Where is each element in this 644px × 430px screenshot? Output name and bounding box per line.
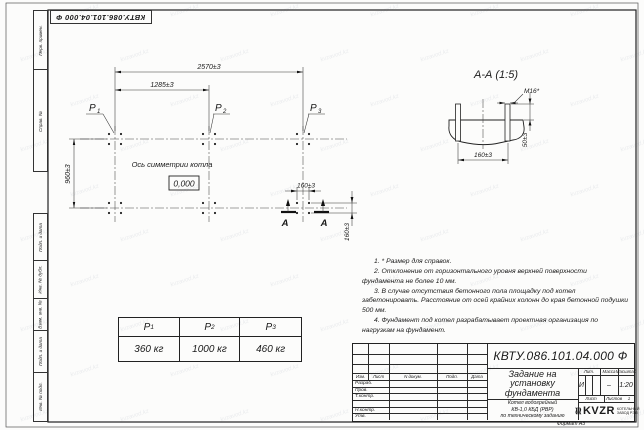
header-text: P [204,322,211,333]
row-tkontr: Т.контр. [355,393,389,400]
note-3: 3. В случае отсутствия бетонного пола пл… [362,287,630,317]
strip-label: Инв. № подл. [38,382,43,411]
logo-cell: KVZR КОТЕЛЬНЫЙ ЗАВОД РЭП [578,402,634,420]
strip-label: Справ. № [38,111,43,132]
load-p1-sub: 1 [97,109,100,115]
strip-label: Перв. примен. [38,25,43,56]
sheets-value: 1 [624,395,634,402]
strip-cell: Инв. № дубл. [34,261,47,299]
anchor-bolt-left [456,104,461,141]
top-designation-text: КВТУ.086.101.04.000 Ф [56,13,145,22]
axis-symmetry-label: Ось симметрии котла [132,160,213,169]
load-p2-sub: 2 [222,109,227,115]
plan-view: 2570±3 1285±3 960±3 P 1 P 2 P 3 Ось симм… [65,64,357,241]
section-letter-right: А [320,218,328,229]
kvzr-logo-text: KVZR [583,405,615,417]
col-list: Лист [368,373,389,380]
kvzr-logo: KVZR КОТЕЛЬНЫЙ ЗАВОД РЭП [573,405,640,417]
load-p3-label: P [310,103,317,114]
note-2: 2. Отклонение от горизонтального уровня … [362,267,630,287]
header-sub: 1 [150,324,154,331]
strip-cell: Перв. примен. [34,11,47,70]
dim-bolt-y-label: 160±3 [344,223,351,241]
load-table: P1 P2 P3 360 кг 1000 кг 460 кг [118,317,302,362]
left-strip-bottom: Подп. и дата Инв. № дубл. Взам. инв. № П… [33,213,48,422]
stamp-product: Котел водогрейный КВ-1,0 КБД (РВР) по те… [488,400,577,420]
strip-label: Подп. и дата [38,337,43,366]
load-p1-label: P [89,103,96,114]
kvzr-logo-caption: КОТЕЛЬНЫЙ ЗАВОД РЭП [617,407,640,415]
format-note: Формат А3 [533,421,609,427]
scale-header: Масштаб [618,368,634,375]
logo-caption-line: ЗАВОД РЭП [617,411,640,415]
load-value-p3: 460 кг [240,337,301,361]
section-dim-height: 50±3 [522,132,529,147]
load-table-header-p1: P1 [119,318,180,337]
technical-notes: 1. * Размер для справок. 2. Отклонение о… [362,257,630,336]
col-data: Дата [467,373,487,380]
anchor-bolt-right [505,104,510,141]
col-izm: Изм. [353,373,368,380]
load-table-header-p2: P2 [180,318,241,337]
dim-overall-label: 2570±3 [196,64,220,71]
section-letter-left: А [281,218,289,229]
section-title: А-А (1:5) [473,69,518,81]
level-mark: 0,000 [173,179,195,189]
section-view: А-А (1:5) М16* 160±3 50±3 [449,69,540,164]
note-1: 1. * Размер для справок. [362,257,630,267]
section-cut-marks: А А [281,199,329,229]
strip-cell: Инв. № подл. [34,373,47,419]
strip-label: Подп. и дата [38,223,43,252]
left-strip-top: Перв. примен. Справ. № [33,10,48,172]
strip-cell: Справ. № [34,70,47,172]
dim-bolt-x-label: 160±3 [297,183,315,190]
section-dim-spacing: 160±3 [474,152,492,159]
header-sub: 3 [272,324,276,331]
load-p2-label: P [215,103,222,114]
strip-cell: Подп. и дата [34,331,47,373]
header-sub: 2 [211,324,215,331]
header-text: P [266,322,273,333]
lit-value: И [578,375,585,395]
note-4: 4. Фундамент под котел разрабатывает про… [362,316,630,336]
dim-half-label: 1285±3 [150,82,173,89]
header-text: P [144,322,151,333]
load-value-p2: 1000 кг [180,337,241,361]
col-podp: Подп. [437,373,467,380]
load-value-p1: 360 кг [119,337,180,361]
kvzr-logo-mark-icon [572,407,582,415]
thread-label: М16* [524,88,540,95]
strip-label: Взам. инв. № [38,300,43,328]
top-designation-box: КВТУ.086.101.04.000 Ф [50,10,152,24]
sheets-label: Листов [604,395,624,402]
lit-header: Лит. [578,368,600,375]
strip-cell: Подп. и дата [34,214,47,261]
strip-cell: Взам. инв. № [34,299,47,331]
sheet-label: Лист [578,395,604,402]
strip-label: Инв. № дубл. [38,265,43,293]
mass-value: – [600,375,618,395]
row-blank [355,400,389,407]
row-razrab: Разраб. [355,380,389,387]
stamp-designation: КВТУ.086.101.04.000 Ф [487,344,634,368]
load-table-header-p3: P3 [240,318,301,337]
scale-value: 1:20 [618,375,634,395]
product-line: по техническому заданию [500,413,564,419]
row-utv: Утв. [355,413,389,420]
col-ndocum: N докум. [389,373,437,380]
stamp-doc-title: Задание на установку фундамента [489,370,576,398]
title-block: КВТУ.086.101.04.000 Ф Изм. Лист N докум.… [352,343,635,422]
dim-depth-label: 960±3 [65,164,72,184]
